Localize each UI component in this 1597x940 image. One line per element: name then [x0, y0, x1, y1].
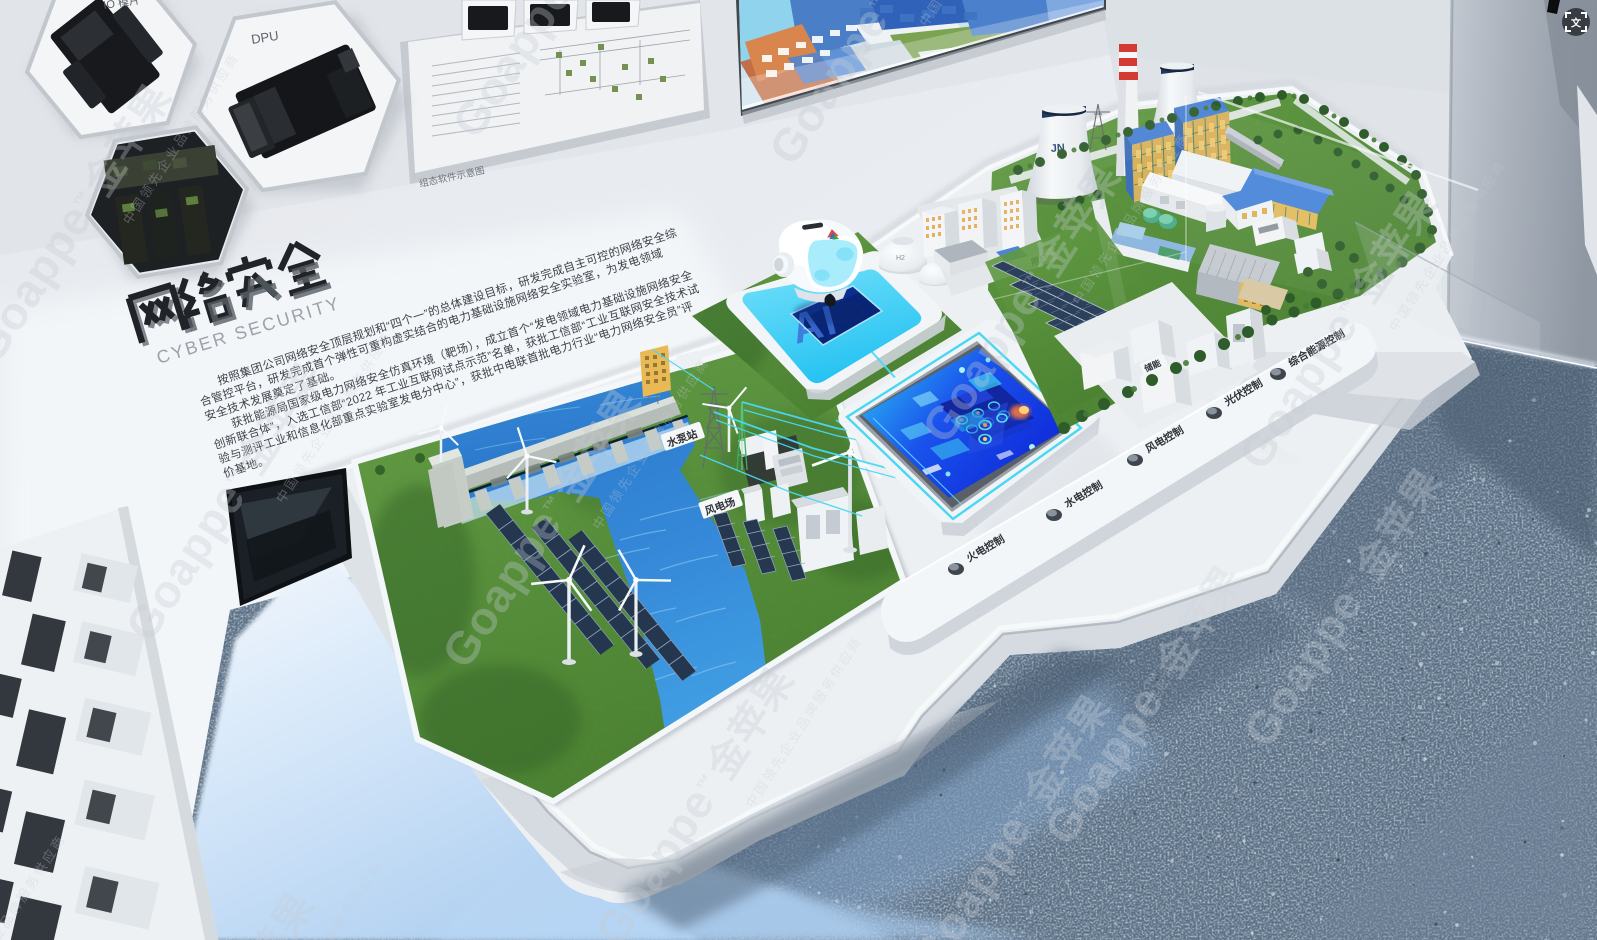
svg-text:H2: H2	[896, 255, 905, 262]
svg-text:文: 文	[1571, 17, 1582, 30]
